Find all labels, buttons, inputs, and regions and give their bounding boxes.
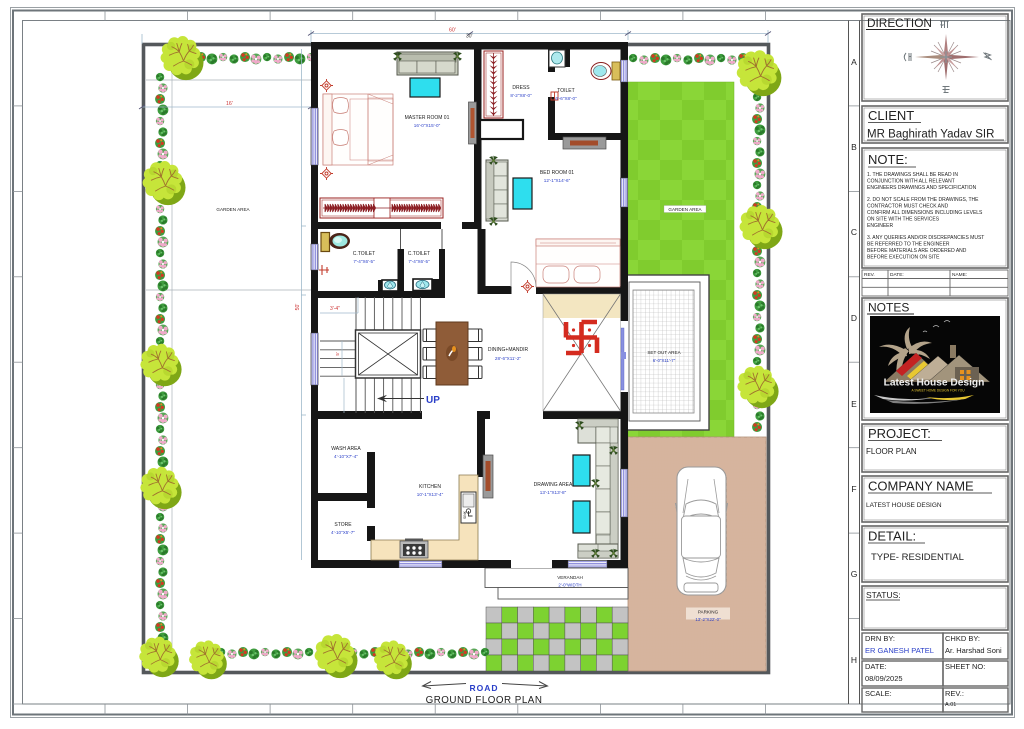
svg-text:Latest House Design: Latest House Design (884, 378, 985, 389)
svg-text:MASTER ROOM 01: MASTER ROOM 01 (405, 115, 450, 121)
svg-text:CHKD BY:: CHKD BY: (945, 634, 980, 643)
svg-text:6'-0"X11'-7": 6'-0"X11'-7" (653, 358, 676, 363)
svg-text:NAME:: NAME: (952, 272, 967, 278)
svg-text:NOTE:: NOTE: (868, 152, 908, 167)
svg-text:TYPE- RESIDENTIAL: TYPE- RESIDENTIAL (871, 552, 964, 563)
svg-text:C.TOILET: C.TOILET (353, 251, 375, 257)
svg-text:GROUND FLOOR PLAN: GROUND FLOOR PLAN (426, 695, 543, 706)
svg-text:A.01: A.01 (945, 702, 956, 708)
svg-text:GARDEN AREA: GARDEN AREA (216, 207, 250, 212)
svg-text:CONFIRM ALL DIMENSIONS INCL: CONFIRM ALL DIMENSIONS INCLUDING LEVELS (867, 210, 983, 216)
svg-text:10'-1"X13'-4": 10'-1"X13'-4" (417, 492, 444, 497)
svg-text:BEFORE EXECUTION ON SITE: BEFORE EXECUTION ON SITE (867, 255, 940, 261)
svg-text:H: H (851, 655, 857, 665)
svg-text:TOILET: TOILET (557, 88, 574, 94)
svg-text:DIRECTION: DIRECTION (867, 16, 932, 30)
svg-text:5': 5' (335, 352, 340, 355)
svg-text:G: G (851, 569, 858, 579)
svg-text:B: B (851, 142, 857, 152)
svg-text:13'-2"X22'-0": 13'-2"X22'-0" (695, 617, 721, 622)
svg-text:PROJECT:: PROJECT: (868, 426, 931, 441)
svg-text:COMPANY NAME: COMPANY NAME (868, 479, 974, 494)
svg-text:2. DO NOT SCALE FROM THE: 2. DO NOT SCALE FROM THE DRAWINGS, THE (867, 197, 979, 203)
svg-text:4'-10"X5'-7": 4'-10"X5'-7" (331, 530, 355, 535)
svg-text:LATEST HOUSE DESIGN: LATEST HOUSE DESIGN (866, 502, 942, 509)
svg-text:60': 60' (449, 28, 456, 34)
svg-text:E: E (851, 399, 857, 409)
svg-text:REV.: REV. (864, 272, 875, 278)
svg-text:BE REFERRED TO THE ENGINEE: BE REFERRED TO THE ENGINEER (867, 242, 950, 248)
svg-text:ON SITE WITH THE SERVICES: ON SITE WITH THE SERVICES (867, 217, 940, 223)
svg-text:A: A (851, 57, 857, 67)
svg-text:7'-4"X6'-5": 7'-4"X6'-5" (408, 259, 430, 264)
svg-text:8'-2"X8'-0": 8'-2"X8'-0" (510, 93, 532, 98)
svg-text:STORE: STORE (334, 522, 352, 528)
svg-text:08/09/2025: 08/09/2025 (865, 674, 903, 683)
svg-text:3'-4": 3'-4" (330, 306, 340, 312)
svg-text:13'-1"X13'-8": 13'-1"X13'-8" (540, 490, 567, 495)
svg-text:50': 50' (295, 304, 301, 311)
svg-text:DETAIL:: DETAIL: (868, 529, 916, 544)
svg-text:D: D (851, 313, 857, 323)
svg-text:DRESS: DRESS (512, 85, 530, 91)
svg-text:ER GANESH PATEL: ER GANESH PATEL (865, 646, 934, 655)
svg-text:4'-10"X7'-4": 4'-10"X7'-4" (334, 454, 358, 459)
svg-text:BEFORE MATERIALS ARE ORDERE: BEFORE MATERIALS ARE ORDERED AND (867, 248, 967, 254)
svg-text:SET OUT AREA: SET OUT AREA (647, 350, 681, 355)
svg-text:30': 30' (466, 34, 473, 40)
svg-text:F: F (851, 484, 856, 494)
svg-text:FLOOR PLAN: FLOOR PLAN (866, 447, 917, 456)
svg-text:CLIENT: CLIENT (868, 108, 914, 123)
svg-text:16'-0"X15'-0": 16'-0"X15'-0" (414, 123, 441, 128)
svg-text:SCALE:: SCALE: (865, 689, 892, 698)
svg-text:1. THE DRAWINGS SHALL BE: 1. THE DRAWINGS SHALL BE READ IN (867, 172, 958, 178)
svg-text:ENGINEERS DRAWINGS AND SPEC: ENGINEERS DRAWINGS AND SPECIFICATION (867, 185, 977, 191)
svg-text:KITCHEN: KITCHEN (419, 484, 441, 490)
svg-text:ENGINEER: ENGINEER (867, 223, 894, 229)
svg-text:UP: UP (426, 395, 440, 406)
svg-text:3. ANY QUERIES AND/OR DISC: 3. ANY QUERIES AND/OR DISCREPANCIES MUST (867, 235, 984, 241)
svg-text:PARKING: PARKING (698, 610, 719, 615)
svg-text:SINK: SINK (463, 510, 467, 519)
svg-text:A SWEET HOME DESIGN FOR YOU: A SWEET HOME DESIGN FOR YOU (911, 389, 965, 393)
svg-text:CONTRACTOR MUST CHECK AND: CONTRACTOR MUST CHECK AND (867, 204, 949, 210)
svg-text:MR Baghirath Yadav SIR: MR Baghirath Yadav SIR (867, 129, 994, 141)
svg-text:2'-0"WIDTH: 2'-0"WIDTH (558, 583, 581, 588)
svg-text:VERANDAH: VERANDAH (557, 575, 583, 580)
svg-text:6'-6"X8'-0": 6'-6"X8'-0" (555, 96, 577, 101)
svg-text:DRAWING AREA: DRAWING AREA (534, 482, 573, 488)
svg-text:DATE:: DATE: (865, 662, 887, 671)
svg-text:BED ROOM 01: BED ROOM 01 (540, 170, 574, 176)
svg-text:SHEET NO:: SHEET NO: (945, 662, 985, 671)
svg-text:CONJUNCTION WITH ALL RELEVA: CONJUNCTION WITH ALL RELEVANT (867, 179, 955, 185)
svg-text:DRN BY:: DRN BY: (865, 634, 895, 643)
svg-text:REV.:: REV.: (945, 689, 964, 698)
svg-text:Ar. Harshad Soni: Ar. Harshad Soni (945, 646, 1002, 655)
svg-text:STATUS:: STATUS: (866, 590, 901, 600)
svg-text:ROAD: ROAD (469, 683, 498, 693)
svg-text:C.TOILET: C.TOILET (408, 251, 430, 257)
svg-text:7'-4"X6'-5": 7'-4"X6'-5" (353, 259, 375, 264)
svg-text:28'-6"X11'-2": 28'-6"X11'-2" (495, 356, 521, 361)
svg-text:16': 16' (226, 101, 233, 107)
svg-text:DATE:: DATE: (890, 272, 904, 278)
svg-text:WASH AREA: WASH AREA (331, 446, 361, 452)
svg-text:12'-1"X14'-6": 12'-1"X14'-6" (544, 178, 571, 183)
svg-text:C: C (851, 227, 857, 237)
svg-text:NOTES: NOTES (868, 301, 909, 315)
svg-text:GARDEN AREA: GARDEN AREA (668, 207, 702, 212)
svg-text:DINING+MANDIR: DINING+MANDIR (488, 347, 529, 353)
